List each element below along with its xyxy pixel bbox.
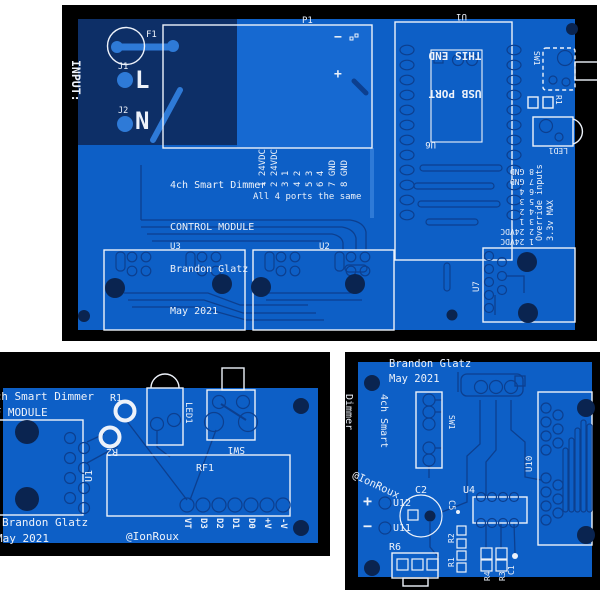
r4-label: R4 <box>483 571 492 581</box>
rf-pin-d3: D3 <box>198 518 208 529</box>
out-credit-name: Brandon Glatz <box>389 359 471 369</box>
override-note: Override inputs <box>536 164 545 241</box>
rf1-label: RF1 <box>196 462 214 476</box>
r3-label: R3 <box>498 571 507 581</box>
j1-pad <box>117 72 133 88</box>
rf-sw1-actuator <box>222 368 244 390</box>
p1-label: P1 <box>302 16 313 26</box>
u6-label: U6 <box>420 139 436 149</box>
override-pin-4: 4 2 <box>474 207 534 216</box>
rf-credit-date: May 2021 <box>0 532 49 545</box>
pin-label-5: 5 3 <box>305 171 315 187</box>
rf-pin-d0: D0 <box>246 518 256 529</box>
r6-tab <box>403 578 428 586</box>
rf-title-line2: RF MODULE <box>0 406 48 419</box>
rf-r1-label: R1 <box>110 392 122 406</box>
ports-note: All 4 ports the same <box>253 192 361 202</box>
override-pin-3: 3 1 <box>474 217 534 226</box>
pin-label-8: 8 GND <box>340 160 350 187</box>
rf-led1-dome <box>151 374 179 388</box>
out-r1-label: R1 <box>447 557 456 567</box>
relay-courtyard-fill <box>237 25 372 148</box>
sw1-actuator <box>575 62 597 80</box>
rf-pin-d1: D1 <box>230 518 240 529</box>
usb-port-note: USB PORT THIS END <box>414 24 496 124</box>
line-terminal-label: L <box>135 68 149 92</box>
out-credit-date: May 2021 <box>389 374 440 384</box>
j1-label: J1 <box>118 62 128 72</box>
voltage-max-note: 3.3v MAX <box>547 200 556 241</box>
override-pin-5: 5 3 <box>474 197 534 206</box>
pin-label-1: 1 24VDC <box>258 149 268 187</box>
c1-pad <box>512 553 518 559</box>
pin-label-4: 4 2 <box>293 171 303 187</box>
neutral-terminal-label: N <box>135 109 149 133</box>
p1-minus-mark: − <box>334 31 342 44</box>
rf-board-image: 4ch Smart Dimmer RF MODULE R1 R2 U1 LED1… <box>0 352 330 556</box>
override-pin-6: 6 4 <box>474 187 534 196</box>
rf-pin-vminus: -V <box>278 518 288 529</box>
u12-label: U12 <box>393 497 411 511</box>
rf-pin-vt: VT <box>182 518 192 529</box>
pin-label-3: 3 1 <box>281 171 291 187</box>
led1-label: LED1 <box>534 146 568 155</box>
output-board-art <box>345 352 600 590</box>
p1-plus-mark: + <box>334 68 342 81</box>
pin-label-2: 2 24VDC <box>270 149 280 187</box>
u7-label: U7 <box>472 281 482 292</box>
u1-label: U1 <box>447 11 467 21</box>
u10-label: U10 <box>525 456 535 472</box>
input-rating-label: INPUT: 85-305vac <box>62 60 108 122</box>
j2-pad <box>117 116 133 132</box>
j2-label: J2 <box>118 106 128 116</box>
rf-title-line1: 4ch Smart Dimmer <box>0 390 94 403</box>
out-plus-mark: + <box>363 495 372 508</box>
c1-label: C1 <box>507 565 516 575</box>
control-title-block: 4ch Smart Dimmer CONTROL MODULE Brandon … <box>170 151 266 341</box>
c2-label: C2 <box>415 484 427 498</box>
rf-pin-vplus: +V <box>262 518 272 529</box>
control-board-image: INPUT: 85-305vac F1 J1 L J2 N P1 − + 4ch… <box>62 5 597 341</box>
u4-label: U4 <box>463 484 475 498</box>
u11-label: U11 <box>393 522 411 536</box>
f1-label: F1 <box>146 30 157 40</box>
out-sw1-label: SW1 <box>447 415 456 429</box>
rf-sw1-label: SW1 <box>213 444 245 454</box>
rf-r2-label: R2 <box>102 444 118 458</box>
pin-label-7: 7 GND <box>328 160 338 187</box>
c5-label: C5 <box>446 500 455 510</box>
rf-u1-label: U1 <box>83 470 97 482</box>
r6-label: R6 <box>389 541 401 555</box>
override-pin-8: 8 GND <box>474 167 534 176</box>
pcb-preview-canvas: INPUT: 85-305vac F1 J1 L J2 N P1 − + 4ch… <box>0 0 600 600</box>
override-pin-1: 1 24VDC <box>474 237 534 246</box>
u3-label: U3 <box>170 242 181 252</box>
rf-pin-d2: D2 <box>214 518 224 529</box>
rf-credit-handle: @IonRoux <box>126 530 179 543</box>
rf-credit-name: Brandon Glatz <box>2 516 88 529</box>
out-title-block: 4ch Smart Dimmer OUTPUT MODULE <box>345 394 412 448</box>
override-pin-7: 7 GND <box>474 177 534 186</box>
r1-label: R1 <box>554 95 563 105</box>
rf-led1-label: LED1 <box>183 402 193 424</box>
sw1-label: SW1 <box>532 51 541 65</box>
out-minus-mark: − <box>363 520 372 533</box>
output-board-image: Brandon Glatz May 2021 4ch Smart Dimmer … <box>345 352 600 590</box>
override-pin-2: 2 24VDC <box>474 227 534 236</box>
u2-label: U2 <box>319 242 330 252</box>
pin-label-6: 6 4 <box>316 171 326 187</box>
out-r2-label: R2 <box>447 533 456 543</box>
